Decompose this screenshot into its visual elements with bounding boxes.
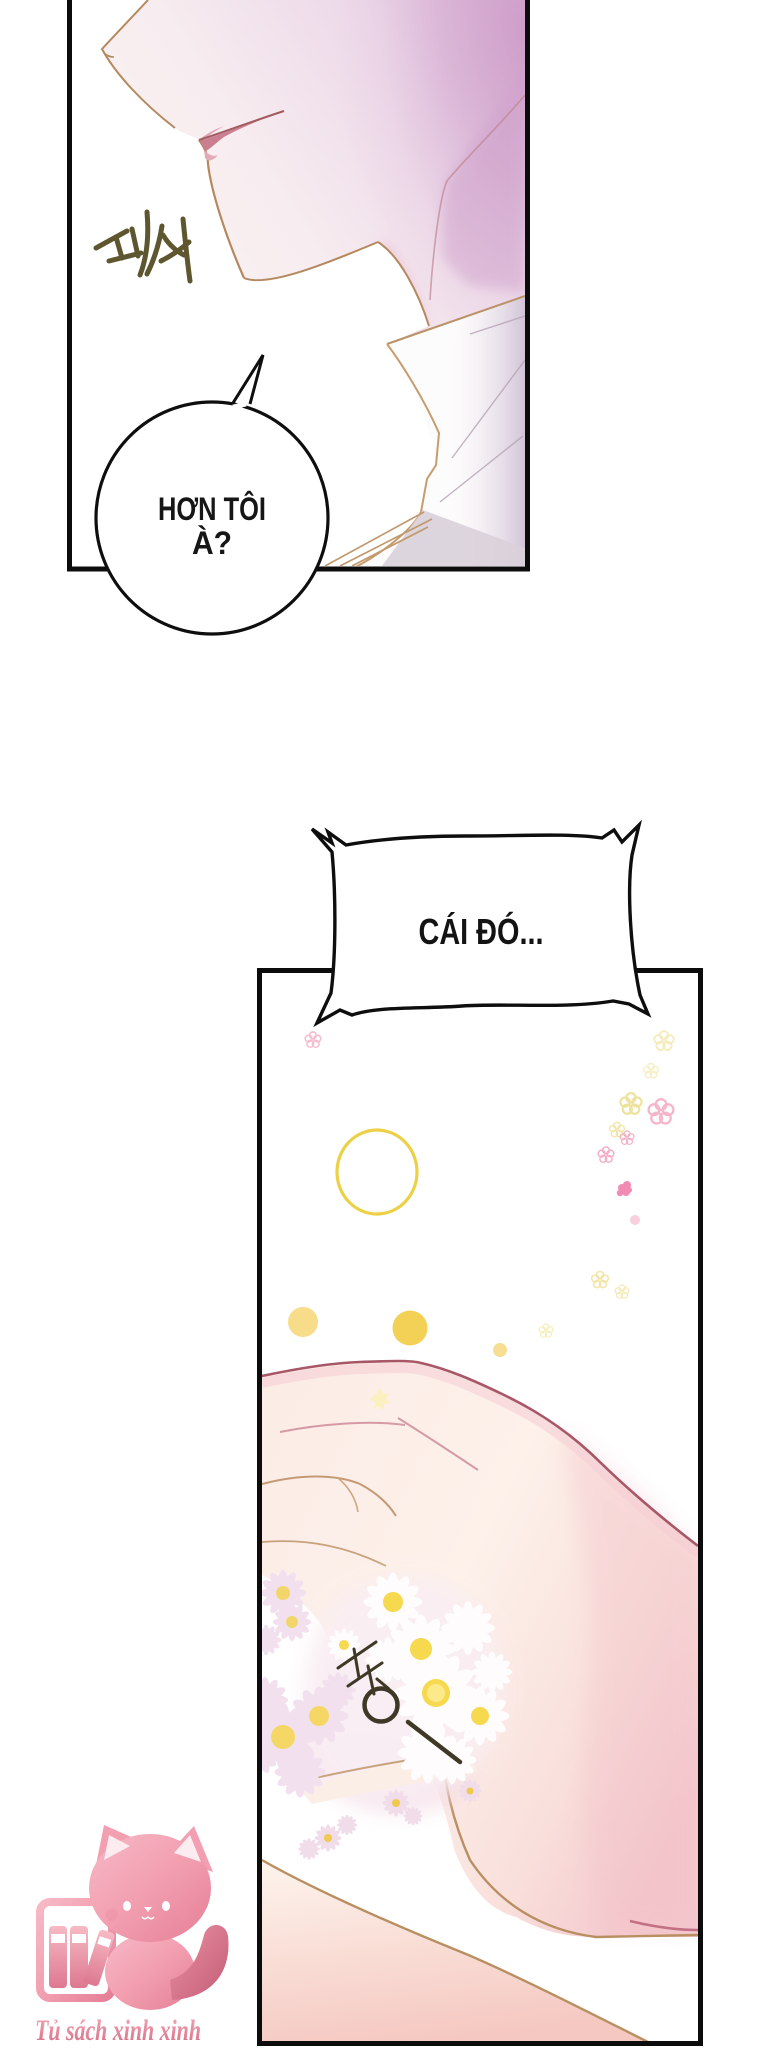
svg-text:CÁI ĐÓ...: CÁI ĐÓ... [419,910,544,952]
svg-text:Tủ sách xinh xinh: Tủ sách xinh xinh [35,2014,201,2047]
svg-text:À?: À? [192,525,232,561]
svg-text:HƠN TÔI: HƠN TÔI [158,491,266,527]
